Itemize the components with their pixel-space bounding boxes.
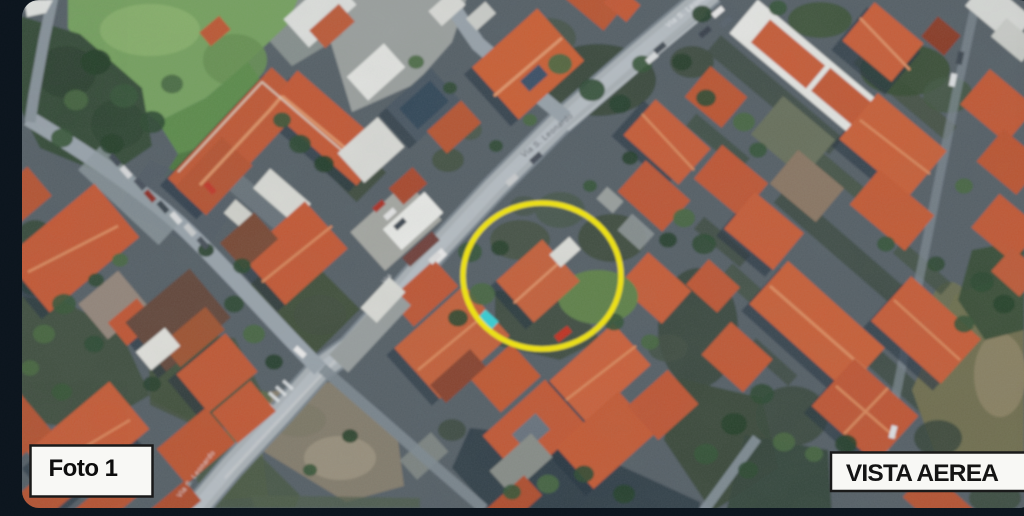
svg-text:VISTA AEREA: VISTA AEREA bbox=[846, 460, 999, 487]
svg-text:Foto 1: Foto 1 bbox=[49, 455, 118, 482]
